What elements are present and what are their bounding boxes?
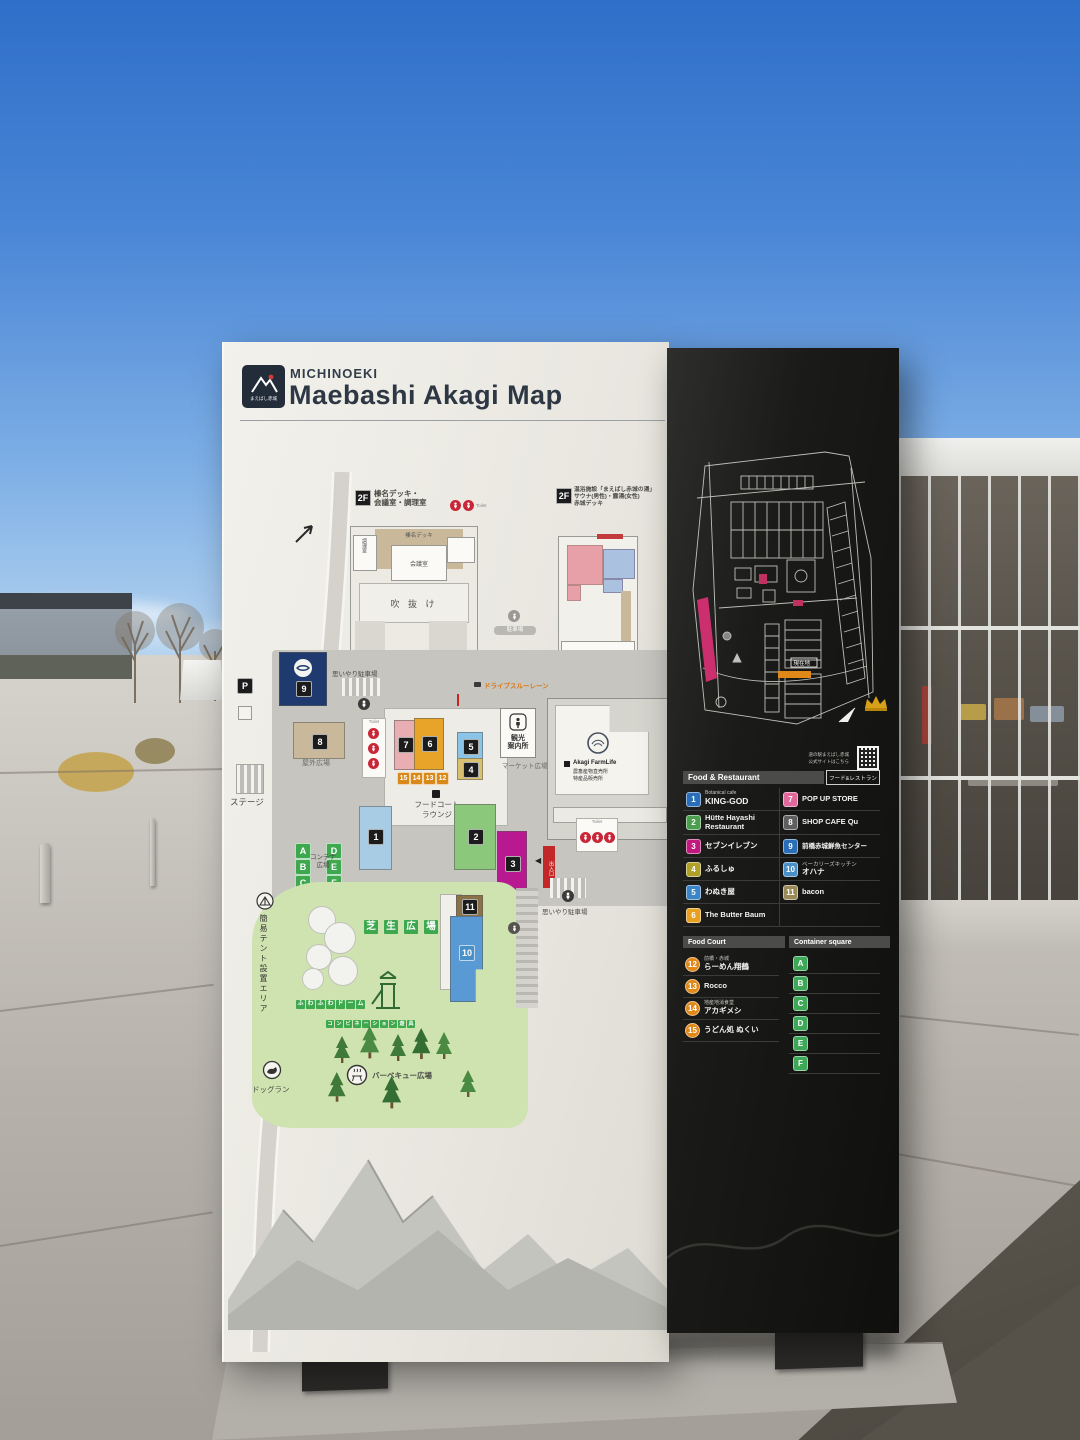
legend-marker-6: 6 xyxy=(686,908,701,923)
legend-item-3: 3 セブンイレブン xyxy=(683,835,779,858)
map-marker-8: 8 xyxy=(312,734,328,750)
atrium: 吹 抜 け xyxy=(359,583,469,623)
mountain-watermark xyxy=(228,1130,668,1330)
sign-foot xyxy=(775,1328,863,1369)
legend-marker-2: 2 xyxy=(686,815,701,830)
legend-item-9: 9 前橋赤城鮮魚センター xyxy=(779,835,880,858)
map-marker-3: 3 xyxy=(505,856,521,872)
dog-run-icon xyxy=(262,1060,282,1080)
map-marker-11: 11 xyxy=(462,899,478,915)
website-note: 道の駅まえばし赤城 公式サイトはこちら xyxy=(763,752,849,766)
tourist-info-label: 観光 案内所 xyxy=(501,735,535,752)
container-row-f: F xyxy=(789,1054,880,1074)
food-court-marker-13: 13 xyxy=(685,979,700,994)
container-badge-c: C xyxy=(793,996,808,1011)
page-title: Maebashi Akagi Map xyxy=(289,380,563,411)
floor2-left-title: 榛名デッキ・ 会議室・調理室 xyxy=(374,489,427,507)
bath-room-small xyxy=(567,585,581,601)
legend-item-2: 2 Hütte HayashiRestaurant xyxy=(683,811,779,835)
food-restaurant-title: Food & Restaurant xyxy=(683,771,824,784)
container-row-d: D xyxy=(789,1014,880,1034)
background-tent xyxy=(180,660,224,700)
toilet-icon xyxy=(368,758,379,769)
bath-room-small xyxy=(603,579,623,593)
market-plaza-label: マーケット広場 xyxy=(502,760,548,770)
pole xyxy=(150,818,155,886)
dome-blob xyxy=(302,968,324,990)
parking-pill-label: 駐車場 xyxy=(494,626,536,635)
food-court-list: 12 前橋・赤城らーめん翔鶴 13 Rocco 14 地産地消食堂アカギメシ 1… xyxy=(683,954,779,1042)
car-icon xyxy=(474,682,481,687)
toilet-label: Toilet xyxy=(476,503,487,508)
map-marker-4: 4 xyxy=(463,762,479,778)
fountain-icon xyxy=(508,922,520,934)
legend-marker-8: 8 xyxy=(783,815,798,830)
fish-center-logo xyxy=(293,658,313,678)
legend-item-empty xyxy=(779,904,880,927)
outdoor-plaza-label: 屋外広場 xyxy=(302,758,330,768)
legend-item-4: 4 ふるしゅ xyxy=(683,858,779,881)
bath-men xyxy=(603,549,635,579)
toilet-label: Toilet xyxy=(363,719,385,724)
dog-run-label: ドッグラン xyxy=(252,1084,290,1095)
crown-icon xyxy=(865,696,887,711)
qr-code xyxy=(857,746,879,770)
building-11-bacon: 11 xyxy=(456,895,483,918)
meeting-room: 会議室 xyxy=(391,545,447,581)
legend-marker-1: 1 xyxy=(686,792,701,807)
container-row-c: C xyxy=(789,994,880,1014)
farm-name-jp1: 農畜産物直売所 xyxy=(573,768,608,775)
mountain-logo-icon xyxy=(249,372,279,394)
container-badge-d: D xyxy=(793,1016,808,1031)
legend-marker-3: 3 xyxy=(686,839,701,854)
legend-item-8: 8 SHOP CAFE Qu xyxy=(779,811,880,835)
michinoeki-logo: まえばし赤城 xyxy=(242,365,285,408)
toilet-icon xyxy=(450,500,461,511)
container-badge-f: F xyxy=(793,1056,808,1071)
map-marker-6: 6 xyxy=(422,736,438,752)
food-court-item-13: 13 Rocco xyxy=(683,976,779,998)
legend-marker-9: 9 xyxy=(783,839,798,854)
accessible-parking-label: 思いやり駐車場 xyxy=(542,906,588,916)
map-marker-5: 5 xyxy=(463,739,479,755)
accessible-parking-label: 思いやり駐車場 xyxy=(332,668,378,678)
container-marker-a: A xyxy=(295,843,311,859)
legend-marker-4: 4 xyxy=(686,862,701,877)
floorplan-left: 榛名デッキ 調理室 会議室 吹 抜 け xyxy=(350,526,478,654)
legend-item-1: 1 Botanical cafeKING-GOD xyxy=(683,788,779,811)
farm-name-jp2: 特産品販売所 xyxy=(573,775,603,782)
map-sign-dark-panel: 現在地 道の駅まえばし赤城 公式サイトはこちら Food & Restauran… xyxy=(667,348,899,1333)
stairs-block xyxy=(355,621,385,651)
window-beam xyxy=(898,626,1080,630)
parking-sub-icon xyxy=(238,706,252,720)
legend-item-6: 6 The Butter Baum xyxy=(683,904,779,927)
building-7-popup: 7 xyxy=(394,720,416,770)
arrow-left-icon: ◀ xyxy=(535,856,541,865)
food-restaurant-legend: 1 Botanical cafeKING-GOD 7 POP UP STORE … xyxy=(683,788,880,927)
legend-item-5: 5 わぬき屋 xyxy=(683,881,779,904)
roof-red-bar xyxy=(597,534,623,539)
crosswalk xyxy=(342,678,380,696)
mountain-watermark-dark xyxy=(667,1188,899,1298)
food-restaurant-title-jp: フード&レストラン xyxy=(826,770,880,785)
background-building-right xyxy=(898,438,1080,950)
toilet-icon xyxy=(592,832,603,843)
compass-icon-dark xyxy=(839,708,855,722)
food-restaurant-header: Food & Restaurant フード&レストラン xyxy=(683,770,880,785)
toilet-building: Toilet xyxy=(576,818,618,852)
wheelchair-icon xyxy=(358,698,370,710)
deck-strip xyxy=(621,591,631,643)
building-9-fish-center: 9 xyxy=(279,652,327,706)
map-marker-2: 2 xyxy=(468,829,484,845)
wheelchair-icon xyxy=(562,890,574,902)
window-beam xyxy=(898,776,1080,780)
legend-item-11: 11 bacon xyxy=(779,881,880,904)
bbq-plaza-label: バーベキュー広場 xyxy=(372,1070,432,1081)
ladder-path xyxy=(516,888,538,1008)
farm-seal-logo xyxy=(586,731,610,755)
brown-shrub xyxy=(135,738,175,764)
farm-badge-icon xyxy=(564,761,570,767)
container-badge-a: A xyxy=(793,956,808,971)
food-court-item-15: 15 うどん処 ぬくい xyxy=(683,1020,779,1042)
food-court-marker-15: 15 xyxy=(685,1023,700,1038)
parking-circle-icon xyxy=(508,610,520,622)
toilet-marker-group: Toilet xyxy=(450,500,487,511)
map-marker-9: 9 xyxy=(296,681,312,697)
building-4-furushu: 4 xyxy=(457,758,483,780)
building-8-shop-cafe: 8 xyxy=(293,722,345,759)
stall-marker-15: 15 xyxy=(397,772,410,785)
tourist-info-building: 観光 案内所 xyxy=(500,708,536,758)
tent-area-icon xyxy=(256,892,274,910)
legend-marker-7: 7 xyxy=(783,792,798,807)
building-2-hutte-hayashi: 2 xyxy=(454,804,496,870)
building-6-butter-baum: 6 xyxy=(414,718,444,770)
food-court-marker-14: 14 xyxy=(685,1001,700,1016)
legend-item-7: 7 POP UP STORE xyxy=(779,788,880,811)
tent-area-label: 簡易テント設置エリア xyxy=(258,914,269,1044)
container-badge-e: E xyxy=(793,1036,808,1051)
stall-marker-13: 13 xyxy=(423,772,436,785)
header-divider xyxy=(240,420,665,421)
food-court-item-14: 14 地産地消食堂アカギメシ xyxy=(683,998,779,1020)
playground-icon xyxy=(368,970,402,1010)
storefront-glass xyxy=(898,476,1080,906)
farm-name-en: Akagi FarmLife xyxy=(573,760,616,766)
toilet-icon xyxy=(368,743,379,754)
toilet-label: Toilet xyxy=(577,819,617,824)
map-marker-10: 10 xyxy=(459,945,475,961)
map-marker-1: 1 xyxy=(368,829,384,845)
floor2-right-badge: 2F xyxy=(556,488,572,504)
brand-small: MICHINOEKI xyxy=(290,366,378,381)
parking-icon: P xyxy=(237,678,253,694)
map-sign-white-panel: まえばし赤城 MICHINOEKI Maebashi Akagi Map 歩道 … xyxy=(222,342,669,1362)
legend-marker-5: 5 xyxy=(686,885,701,900)
food-court-header: Food Court xyxy=(683,936,785,948)
floor2-right-title: 温浴施設「まえばし赤城の湯」 サウナ(男性)・露湯(女性) 赤城デッキ xyxy=(574,487,655,509)
floor2-left-badge: 2F xyxy=(355,490,371,506)
container-row-b: B xyxy=(789,974,880,994)
window-mullions xyxy=(898,476,1080,906)
bath-women xyxy=(567,545,603,585)
container-square-header: Container square xyxy=(789,936,890,948)
legend-marker-10: 10 xyxy=(783,862,798,877)
building-5-wanukiya: 5 xyxy=(457,732,483,760)
food-court-item-12: 12 前橋・赤城らーめん翔鶴 xyxy=(683,954,779,976)
container-square-list: A B C D E F xyxy=(789,954,880,1074)
building-plinth xyxy=(898,900,1080,950)
bollard xyxy=(40,843,50,903)
toilet-icon xyxy=(463,500,474,511)
toilet-building: Toilet xyxy=(362,718,386,778)
photo-scene: まえばし赤城 MICHINOEKI Maebashi Akagi Map 歩道 … xyxy=(0,0,1080,1440)
bbq-icon xyxy=(346,1064,368,1086)
container-badge-b: B xyxy=(793,976,808,991)
stage-shape xyxy=(236,764,264,794)
stall-marker-12: 12 xyxy=(436,772,449,785)
drive-through-label: ドライブスルーレーン xyxy=(484,680,549,690)
building-fascia xyxy=(898,438,1080,476)
legend-marker-11: 11 xyxy=(783,885,798,900)
map-marker-7: 7 xyxy=(398,737,414,753)
lawn-plaza-label: 芝生広場 xyxy=(364,916,444,934)
tourist-info-icon xyxy=(509,713,527,731)
building-1-king-god: 1 xyxy=(359,806,392,870)
container-row-e: E xyxy=(789,1034,880,1054)
foodcourt-icon xyxy=(432,790,440,798)
container-row-a: A xyxy=(789,954,880,974)
toilet-icon xyxy=(604,832,615,843)
red-tick xyxy=(457,694,459,706)
annex-room xyxy=(447,537,475,563)
logo-caption: まえばし赤城 xyxy=(250,396,277,402)
container-plaza-label: コンテナ 広場 xyxy=(310,854,336,871)
floorplan-right xyxy=(558,536,638,656)
stairs-block xyxy=(429,621,467,651)
kitchen-room: 調理室 xyxy=(353,535,377,571)
dome-blob xyxy=(328,956,358,986)
stage-label: ステージ xyxy=(230,796,264,808)
food-court-marker-12: 12 xyxy=(685,957,700,972)
toilet-icon xyxy=(368,728,379,739)
stall-marker-14: 14 xyxy=(410,772,423,785)
fuwafuwa-dome-label: ふわふわドーム xyxy=(296,992,366,1010)
you-are-here-label: 現在地 xyxy=(794,659,811,667)
parking-lot-map: 現在地 xyxy=(675,440,887,740)
container-marker-b: B xyxy=(295,859,311,875)
toilet-icon xyxy=(580,832,591,843)
legend-item-10: 10 ベーカリーズキッチンオハナ xyxy=(779,858,880,881)
